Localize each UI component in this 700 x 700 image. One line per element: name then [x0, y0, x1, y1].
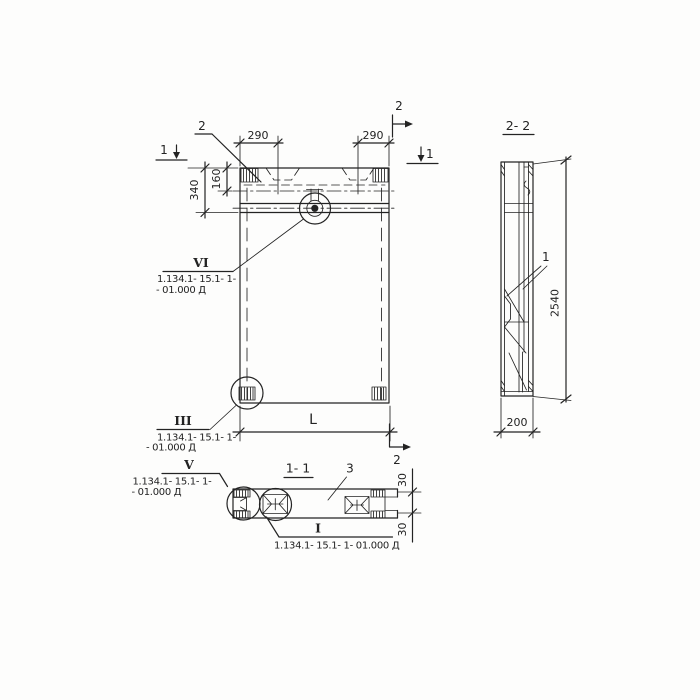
leader-iii: [210, 405, 237, 430]
plan-right-notch: [385, 497, 398, 511]
dim-30-top-label: 30: [396, 473, 409, 487]
dim-200: 200: [494, 398, 540, 438]
drawing-sheet: 290 290 340 160 L 1: [0, 0, 700, 700]
item-3-label: 3: [346, 462, 354, 476]
section-1-right-label: 1: [426, 147, 434, 161]
dim-340-160: 340 160: [188, 162, 238, 218]
callout-v: V 1.134.1- 15.1- 1- - 01.000 Д: [132, 457, 228, 498]
callout-i-numeral: I: [315, 521, 321, 536]
dim-30-30: 30 30: [396, 469, 421, 542]
dim-2540-label: 2540: [549, 289, 562, 317]
dim-160-label: 160: [210, 169, 223, 190]
break-squiggle: [524, 181, 530, 195]
dim-290-right-label: 290: [363, 129, 384, 142]
plan-outline: [233, 489, 398, 518]
dim-200-label: 200: [507, 416, 528, 429]
callout-iii: III 1.134.1- 15.1- 1- - 01.000 Д: [146, 413, 237, 454]
dim-2540: 2540: [533, 156, 571, 403]
detail-circle-v: [227, 487, 260, 520]
section-2-bottom-label: 2: [393, 453, 401, 467]
arrow-down-icon: [418, 155, 425, 162]
section-2-top-label: 2: [395, 99, 403, 113]
section-1-1-title: 1- 1: [286, 461, 310, 476]
elevation-view: 290 290 340 160 L 1: [146, 99, 438, 467]
dim-290-left-label: 290: [248, 129, 269, 142]
dim-290-right: 290: [353, 129, 394, 194]
side-inner-lines: [505, 162, 529, 396]
section-mark-1-left: 1: [156, 143, 187, 160]
side-section-view: 2- 2 1 2540 200: [494, 118, 571, 438]
section-mark-1-right: 1: [407, 147, 438, 164]
callout-v-line1: 1.134.1- 15.1- 1-: [133, 477, 213, 488]
side-keyway-bump: [505, 296, 529, 327]
plan-section-view: 1- 1 3 30 30: [132, 457, 422, 552]
section-mark-2-bottom: 2: [390, 424, 412, 467]
dim-290-left: 290: [234, 129, 283, 194]
inner-edges-dashed: [247, 188, 382, 400]
keyway-left: [263, 495, 288, 514]
technical-drawing: 290 290 340 160 L 1: [0, 0, 700, 700]
callout-vi-line1: 1.134.1- 15.1- 1-: [157, 274, 237, 285]
callout-iii-numeral: III: [174, 413, 192, 428]
callout-v-numeral: V: [183, 457, 194, 472]
section-1-left-label: 1: [160, 143, 168, 157]
item-2-label: 2: [198, 119, 206, 133]
dim-length-label: L: [309, 412, 317, 428]
arrow-right-icon: [405, 121, 413, 128]
arrow-right-icon: [403, 444, 411, 451]
callout-i-line1: 1.134.1- 15.1- 1- 01.000 Д: [274, 541, 400, 552]
callout-vi-numeral: VI: [192, 255, 209, 270]
callout-iii-line2: - 01.000 Д: [146, 443, 196, 454]
dim-length: L: [233, 406, 397, 441]
section-2-2-title: 2- 2: [506, 118, 530, 133]
dim-30-bottom-label: 30: [396, 523, 409, 537]
callout-v-line2: - 01.000 Д: [132, 487, 182, 498]
item-1-label: 1: [542, 250, 550, 264]
callout-vi-line2: - 01.000 Д: [156, 285, 206, 296]
plan-left-notch: [233, 498, 247, 511]
callout-vi: VI 1.134.1- 15.1- 1- - 01.000 Д: [156, 255, 237, 296]
section-mark-2-top: 2: [393, 99, 414, 137]
arrow-down-icon: [173, 152, 180, 159]
side-rib-diagonals: [505, 289, 527, 392]
dim-340-label: 340: [188, 180, 201, 201]
keyway-right: [345, 497, 369, 514]
item-3-callout: 3: [328, 462, 354, 501]
callout-i: I 1.134.1- 15.1- 1- 01.000 Д: [267, 517, 400, 552]
leader-vi: [233, 219, 304, 272]
